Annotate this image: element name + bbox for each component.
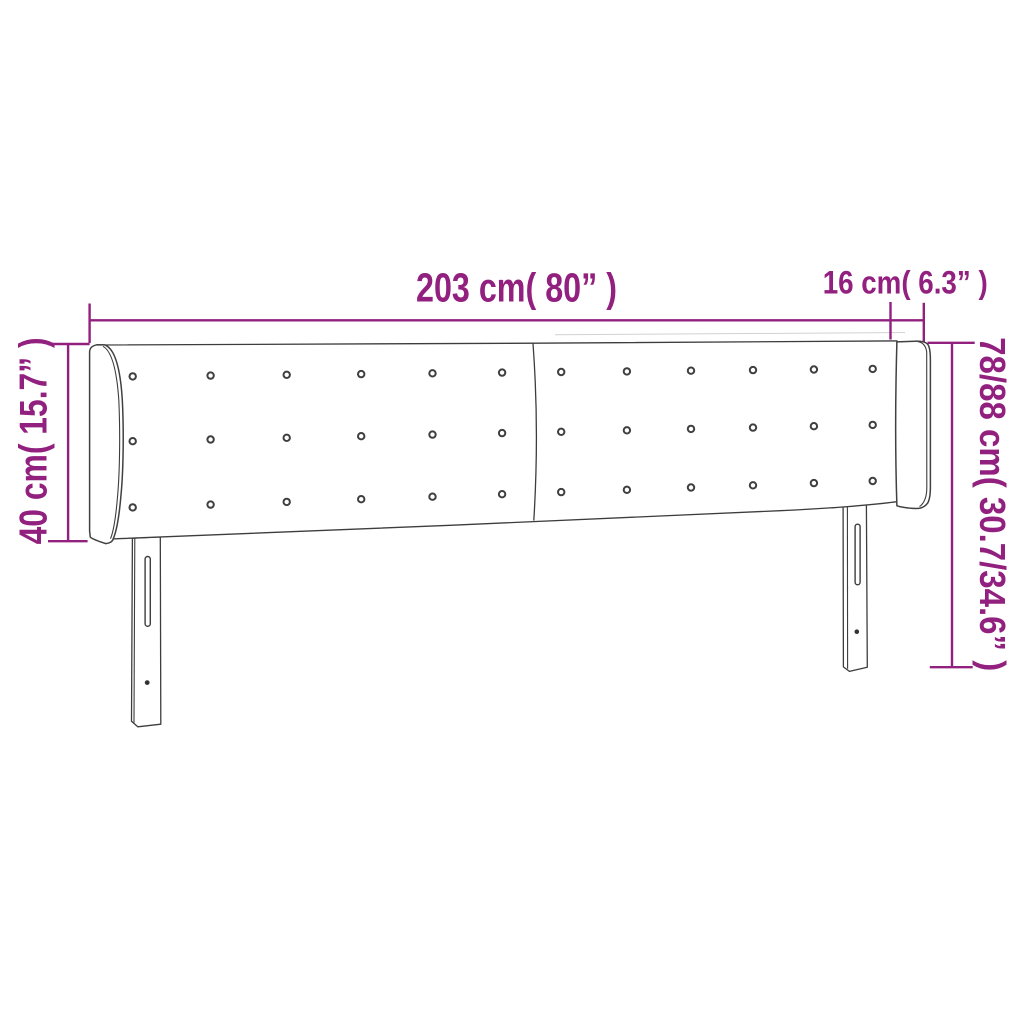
svg-text:203 cm( 80” ): 203 cm( 80” ) bbox=[416, 265, 617, 311]
svg-text:16 cm( 6.3” ): 16 cm( 6.3” ) bbox=[823, 265, 988, 301]
svg-text:78/88 cm( 30.7/34.6” ): 78/88 cm( 30.7/34.6” ) bbox=[972, 337, 1012, 671]
svg-text:40 cm( 15.7” ): 40 cm( 15.7” ) bbox=[12, 337, 55, 544]
